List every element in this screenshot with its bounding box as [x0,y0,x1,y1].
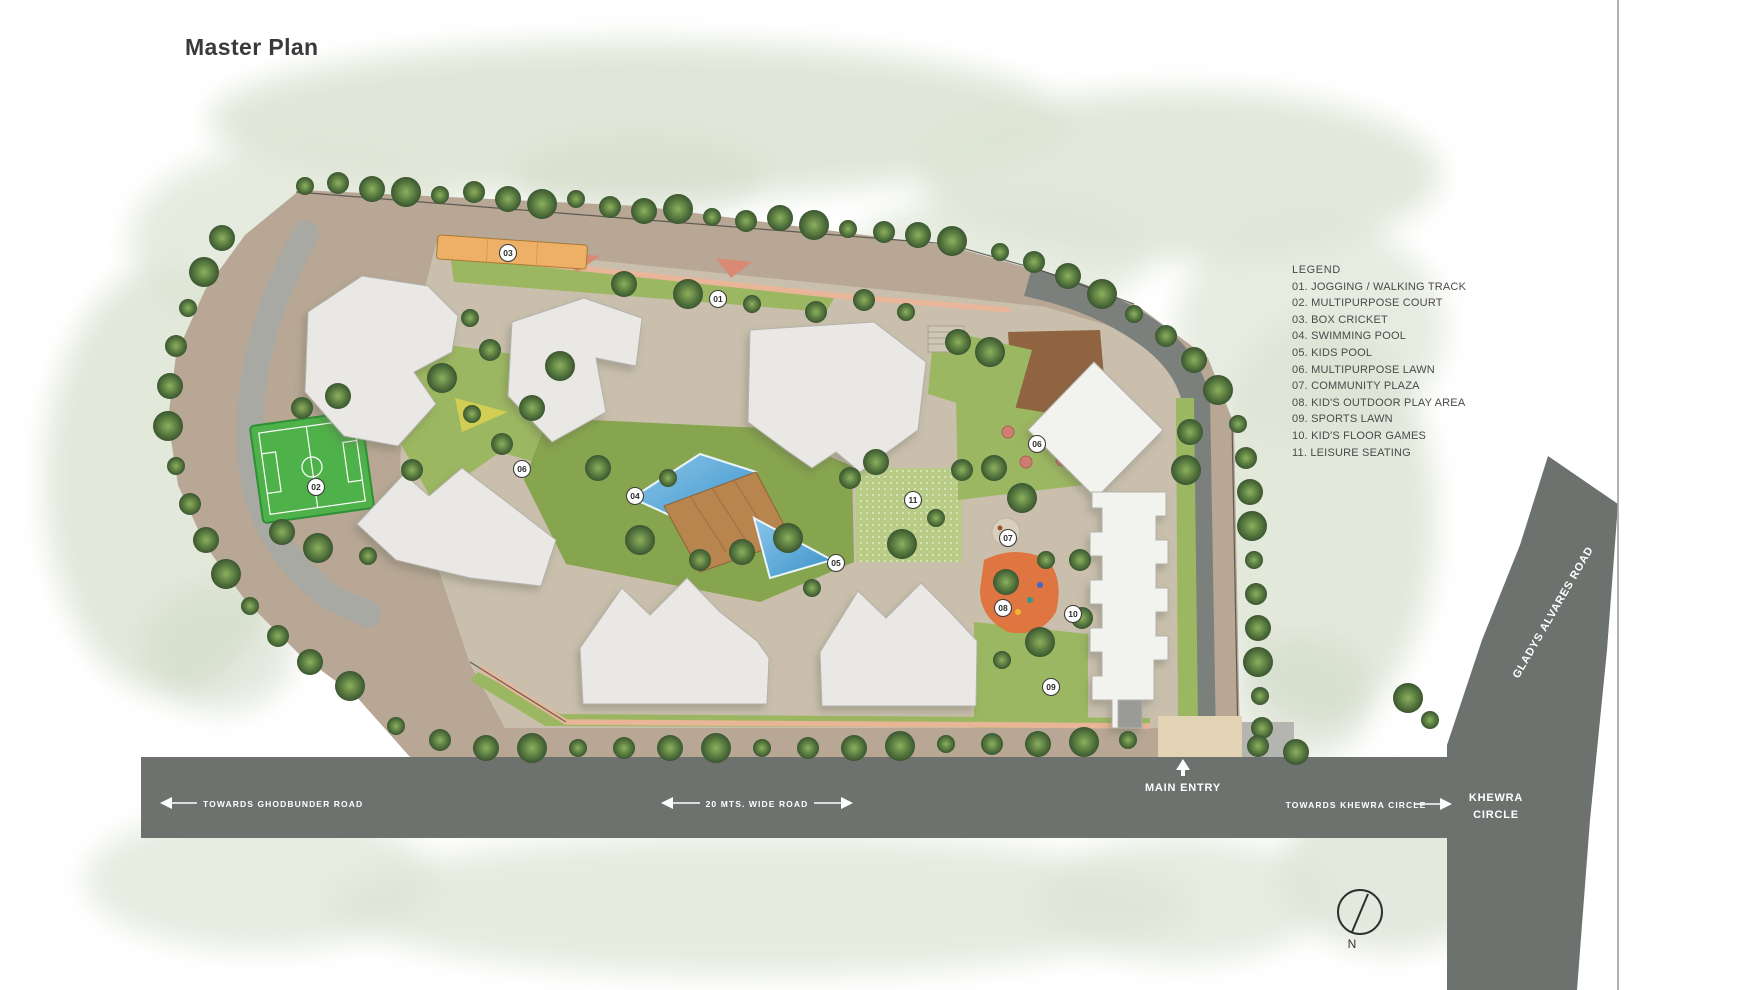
tree [797,737,819,759]
tree [735,210,757,232]
tree [799,210,829,240]
tree [743,295,761,313]
tree [945,329,971,355]
tree [991,243,1009,261]
page-title: Master Plan [185,34,319,61]
tree [951,459,973,481]
tree [839,220,857,238]
bottom-road [141,757,1470,838]
tree [981,733,1003,755]
tree [703,208,721,226]
svg-text:08: 08 [998,603,1008,613]
tree [897,303,915,321]
svg-text:04: 04 [630,491,640,501]
tree [167,457,185,475]
tree [841,735,867,761]
marker-badge: 11 [905,492,922,509]
tree [359,547,377,565]
tree [993,569,1019,595]
tree [1171,455,1201,485]
tree [241,597,259,615]
master-plan-canvas: 010203040506060708091011 TOWARDS GHODBUN… [0,0,1760,990]
legend-item: 10. KID'S FLOOR GAMES [1292,428,1466,445]
legend-item: 07. COMMUNITY PLAZA [1292,378,1466,395]
tree [1245,551,1263,569]
tree [359,176,385,202]
legend-item: 04. SWIMMING POOL [1292,328,1466,345]
legend-item: 06. MULTIPURPOSE LAWN [1292,362,1466,379]
tree [1055,263,1081,289]
khewra-circle-line2: CIRCLE [1473,809,1519,821]
tree [663,194,693,224]
tree [1235,447,1257,469]
building-stub [1118,700,1142,728]
tree [927,509,945,527]
tree [431,186,449,204]
tree [887,529,917,559]
khewra-circle-line1: KHEWRA [1469,792,1523,804]
towards-khewra-label: TOWARDS KHEWRA CIRCLE [1286,800,1427,810]
tree [303,533,333,563]
tree [631,198,657,224]
north-label: N [1348,937,1357,951]
tree [179,493,201,515]
tree [657,735,683,761]
tree [863,449,889,475]
marker-badge: 05 [828,555,845,572]
marker-badge: 01 [710,291,727,308]
entry-driveway [1158,716,1242,757]
tree [267,625,289,647]
tree [179,299,197,317]
tree [1025,627,1055,657]
tree [981,455,1007,481]
svg-text:02: 02 [311,482,321,492]
tree [1037,551,1055,569]
main-entry-label: MAIN ENTRY [1145,782,1221,794]
tree [673,279,703,309]
svg-text:07: 07 [1003,533,1013,543]
tree [1237,479,1263,505]
tree [495,186,521,212]
tree [569,739,587,757]
tree [165,335,187,357]
tree [853,289,875,311]
tree [517,733,547,763]
tree [491,433,513,455]
tree [1245,583,1267,605]
marker-badge: 04 [627,488,644,505]
marker-badge: 06 [514,461,531,478]
tree [659,469,677,487]
tree [993,651,1011,669]
tree [625,525,655,555]
master-plan-page: 010203040506060708091011 TOWARDS GHODBUN… [0,0,1760,990]
tree [527,189,557,219]
tree [327,172,349,194]
tree [975,337,1005,367]
tree [211,559,241,589]
tree [773,523,803,553]
legend-item: 08. KID'S OUTDOOR PLAY AREA [1292,395,1466,412]
marker-badge: 03 [500,245,517,262]
tree [1229,415,1247,433]
legend-title: LEGEND [1292,262,1466,279]
tree [1087,279,1117,309]
tree [1237,511,1267,541]
tree [335,671,365,701]
tree [545,351,575,381]
legend-item: 05. KIDS POOL [1292,345,1466,362]
tree [391,177,421,207]
legend-item: 09. SPORTS LAWN [1292,411,1466,428]
svg-text:01: 01 [713,294,723,304]
tree [296,177,314,195]
tree [463,181,485,203]
tree [209,225,235,251]
tree [767,205,793,231]
tree [429,729,451,751]
ghodbunder-label: TOWARDS GHODBUNDER ROAD [203,799,363,809]
tree [269,519,295,545]
svg-text:10: 10 [1068,609,1078,619]
tree [463,405,481,423]
tree [599,196,621,218]
tree [839,467,861,489]
marker-badge: 07 [1000,530,1017,547]
tree [291,397,313,419]
tree [1247,735,1269,757]
tree [473,735,499,761]
tree [157,373,183,399]
tree [1119,731,1137,749]
tree [701,733,731,763]
svg-text:06: 06 [517,464,527,474]
legend-item: 02. MULTIPURPOSE COURT [1292,295,1466,312]
marker-badge: 10 [1065,606,1082,623]
wide-road-label: 20 MTS. WIDE ROAD [706,799,809,809]
tree [1251,687,1269,705]
tree [387,717,405,735]
legend-item: 11. LEISURE SEATING [1292,445,1466,462]
tree [1203,375,1233,405]
tree [193,527,219,553]
tree [1243,647,1273,677]
tree [479,339,501,361]
tree [937,226,967,256]
tree [461,309,479,327]
tree [585,455,611,481]
tree [753,739,771,757]
marker-badge: 09 [1043,679,1060,696]
khewra-road [1447,456,1618,990]
tree [189,257,219,287]
tree [1283,739,1309,765]
tree [1069,727,1099,757]
tree [905,222,931,248]
tree [1007,483,1037,513]
tree [427,363,457,393]
tree [611,271,637,297]
tree [297,649,323,675]
tree [1393,683,1423,713]
tree [1421,711,1439,729]
tree [401,459,423,481]
tree [803,579,821,597]
tree [613,737,635,759]
legend-item: 03. BOX CRICKET [1292,312,1466,329]
tree [325,383,351,409]
tree [805,301,827,323]
tree [1025,731,1051,757]
legend: LEGEND 01. JOGGING / WALKING TRACK02. MU… [1292,262,1466,461]
tree [689,549,711,571]
legend-item: 01. JOGGING / WALKING TRACK [1292,279,1466,296]
tree [1023,251,1045,273]
svg-text:03: 03 [503,248,513,258]
tree [153,411,183,441]
tree [519,395,545,421]
tree [567,190,585,208]
tree [1177,419,1203,445]
marker-badge: 02 [308,479,325,496]
tree [1155,325,1177,347]
tree [1125,305,1143,323]
svg-text:06: 06 [1032,439,1042,449]
tree [729,539,755,565]
marker-badge: 06 [1029,436,1046,453]
tree [1245,615,1271,641]
tree [1181,347,1207,373]
marker-badge: 08 [995,600,1012,617]
tree [937,735,955,753]
tree [1069,549,1091,571]
svg-text:05: 05 [831,558,841,568]
tree [885,731,915,761]
legend-items: 01. JOGGING / WALKING TRACK02. MULTIPURP… [1292,279,1466,462]
svg-text:11: 11 [909,495,918,505]
svg-text:09: 09 [1046,682,1056,692]
tree [873,221,895,243]
